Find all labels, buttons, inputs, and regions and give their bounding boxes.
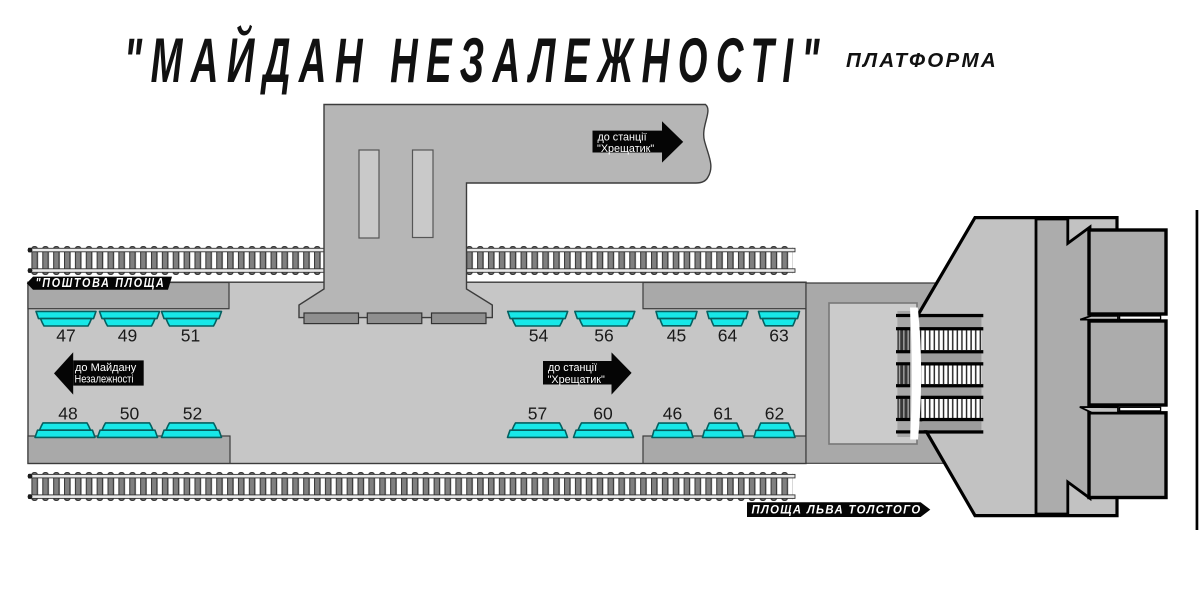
svg-text:до станції: до станції [548,362,597,374]
svg-text:60: 60 [593,404,613,424]
svg-text:63: 63 [769,326,788,346]
svg-text:48: 48 [58,404,77,424]
svg-text:Незалежності: Незалежності [75,373,134,385]
svg-text:54: 54 [529,326,549,346]
svg-text:50: 50 [120,404,140,424]
svg-text:до Майдану: до Майдану [75,362,137,374]
svg-text:57: 57 [528,404,547,424]
svg-text:47: 47 [56,326,75,346]
svg-text:46: 46 [663,404,682,424]
svg-text:ПЛАТФОРМА: ПЛАТФОРМА [846,50,998,72]
svg-text:64: 64 [718,326,738,346]
svg-text:ПЛОЩА ЛЬВА ТОЛСТОГО: ПЛОЩА ЛЬВА ТОЛСТОГО [752,503,922,517]
svg-text:49: 49 [118,326,137,346]
svg-text:51: 51 [181,326,200,346]
svg-text:45: 45 [667,326,686,346]
svg-text:62: 62 [765,404,784,424]
svg-text:до станції: до станції [598,131,647,143]
svg-text:"Хрещатик": "Хрещатик" [597,143,654,155]
svg-text:"МАЙДАН НЕЗАЛЕЖНОСТІ": "МАЙДАН НЕЗАЛЕЖНОСТІ" [124,24,828,96]
svg-text:52: 52 [183,404,202,424]
svg-text:"ПОШТОВА ПЛОЩА: "ПОШТОВА ПЛОЩА [36,276,166,290]
svg-text:56: 56 [594,326,613,346]
svg-text:61: 61 [713,404,732,424]
svg-text:"Хрещатик": "Хрещатик" [548,374,605,386]
